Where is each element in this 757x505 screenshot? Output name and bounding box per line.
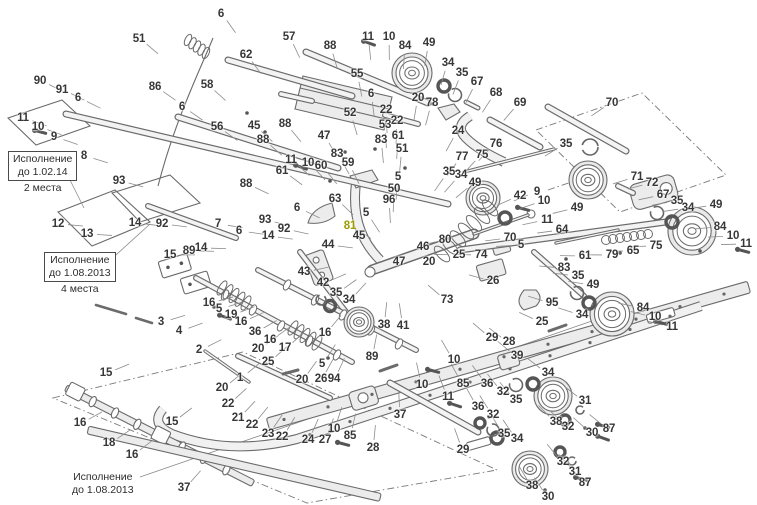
leader-line: [49, 85, 62, 92]
note-line: до 1.08.2013: [49, 267, 111, 280]
leader-line: [498, 341, 510, 351]
note-line: Исполнение: [13, 153, 72, 166]
leader-line: [480, 395, 488, 408]
leader-line: [553, 210, 568, 214]
leader-line: [208, 340, 221, 347]
leader-line: [266, 336, 278, 345]
leader-line: [446, 138, 453, 151]
leader-line: [214, 90, 225, 100]
leader-line: [369, 45, 371, 60]
leader-line: [473, 323, 484, 333]
leader-line: [397, 144, 398, 159]
leader-line: [435, 179, 444, 191]
leader-line: [514, 195, 528, 201]
note-line: до 1.08.2013: [72, 484, 134, 497]
leader-line: [264, 321, 277, 328]
leader-line: [374, 425, 375, 440]
leader-line: [87, 102, 100, 109]
note-box: Исполнение до 1.08.2013: [44, 252, 116, 282]
leader-line: [386, 118, 387, 133]
note-line: Исполнение: [72, 471, 134, 484]
leader-line: [228, 225, 243, 227]
leader-line: [444, 181, 454, 192]
leader-line: [94, 158, 108, 163]
leader-line: [500, 382, 510, 393]
leader-line: [441, 71, 445, 85]
leader-line: [71, 94, 84, 101]
leader-line: [466, 89, 473, 102]
leader-line: [590, 415, 602, 424]
note-box: Исполнение до 1.08.2013: [72, 471, 134, 497]
leader-line: [591, 108, 603, 116]
leader-line: [503, 420, 511, 432]
leader-line: [396, 129, 397, 144]
leader-line: [172, 225, 187, 227]
leader-line: [374, 334, 377, 349]
leader-line: [230, 374, 242, 383]
leader-line: [447, 163, 456, 175]
leader-line: [180, 408, 192, 417]
leader-line: [573, 418, 584, 428]
note-version-2014: Исполнение до 1.02.14 2 места: [8, 151, 77, 195]
leader-line: [235, 388, 246, 398]
leader-line: [338, 246, 353, 248]
leader-line: [275, 222, 290, 226]
leader-line: [261, 131, 272, 141]
leader-line: [331, 315, 341, 326]
leader-line: [441, 340, 449, 353]
leader-line: [293, 44, 299, 58]
note-footer: 2 места: [8, 181, 77, 195]
leader-line: [245, 401, 255, 412]
leader-line: [249, 232, 264, 234]
leader-line: [89, 412, 102, 419]
leader-line: [414, 106, 416, 121]
leader-line: [290, 176, 302, 185]
leader-line: [278, 237, 293, 239]
leader-line: [227, 21, 236, 33]
leader-line: [485, 239, 500, 241]
exploded-parts-diagram: 5168658629091611109865657881110844934356…: [0, 0, 757, 505]
leader-line: [344, 280, 356, 289]
leader-line: [276, 347, 287, 357]
leader-line: [171, 315, 185, 319]
leader-line: [482, 100, 490, 113]
leader-line: [338, 358, 344, 372]
leader-line: [329, 143, 337, 156]
note-version-2013: Исполнение до 1.08.2013: [72, 471, 134, 497]
leader-line: [188, 323, 202, 328]
leader-line: [63, 140, 77, 145]
leader-line: [68, 225, 83, 226]
leader-line: [191, 471, 201, 482]
leader-line: [663, 209, 678, 211]
leader-line: [385, 302, 387, 317]
leader-line: [97, 234, 112, 235]
leader-line: [382, 148, 383, 163]
leader-line: [569, 465, 579, 476]
leader-line: [332, 274, 346, 280]
leader-line: [294, 231, 309, 234]
leader-line: [426, 111, 430, 125]
leader-line: [455, 428, 460, 442]
leader-line: [520, 204, 534, 209]
leader-line: [32, 121, 46, 126]
leader-line: [537, 231, 552, 233]
leader-line: [558, 308, 572, 313]
leader-line: [326, 359, 333, 372]
note-line: Исполнение: [49, 254, 111, 267]
leader-line: [453, 80, 458, 94]
leader-line: [489, 328, 501, 337]
leader-line: [356, 283, 366, 294]
note-footer: 4 места: [44, 282, 116, 296]
leader-line: [399, 303, 401, 318]
leader-line: [255, 187, 269, 193]
leader-line: [147, 44, 158, 54]
leader-line: [371, 220, 379, 233]
leader-line: [386, 133, 387, 148]
note-box: Исполнение до 1.02.14: [8, 151, 77, 181]
leader-line: [47, 130, 61, 135]
leader-line: [400, 157, 401, 172]
leader-line: [258, 407, 267, 419]
leader-line: [308, 361, 317, 373]
leader-line: [163, 92, 175, 101]
leader-line: [466, 387, 473, 400]
leader-line: [519, 312, 533, 318]
leader-line: [491, 414, 499, 427]
leader-line: [523, 222, 538, 225]
leader-line: [504, 109, 514, 120]
leader-line: [428, 285, 439, 295]
leader-line: [342, 161, 349, 174]
leader-line: [145, 224, 160, 226]
note-version-2013-4seats: Исполнение до 1.08.2013 4 места: [44, 252, 116, 296]
leader-line: [390, 208, 391, 223]
note-line: до 1.02.14: [13, 166, 72, 179]
leader-line: [291, 130, 301, 142]
leader-line: [613, 179, 627, 183]
leader-line: [115, 364, 129, 370]
